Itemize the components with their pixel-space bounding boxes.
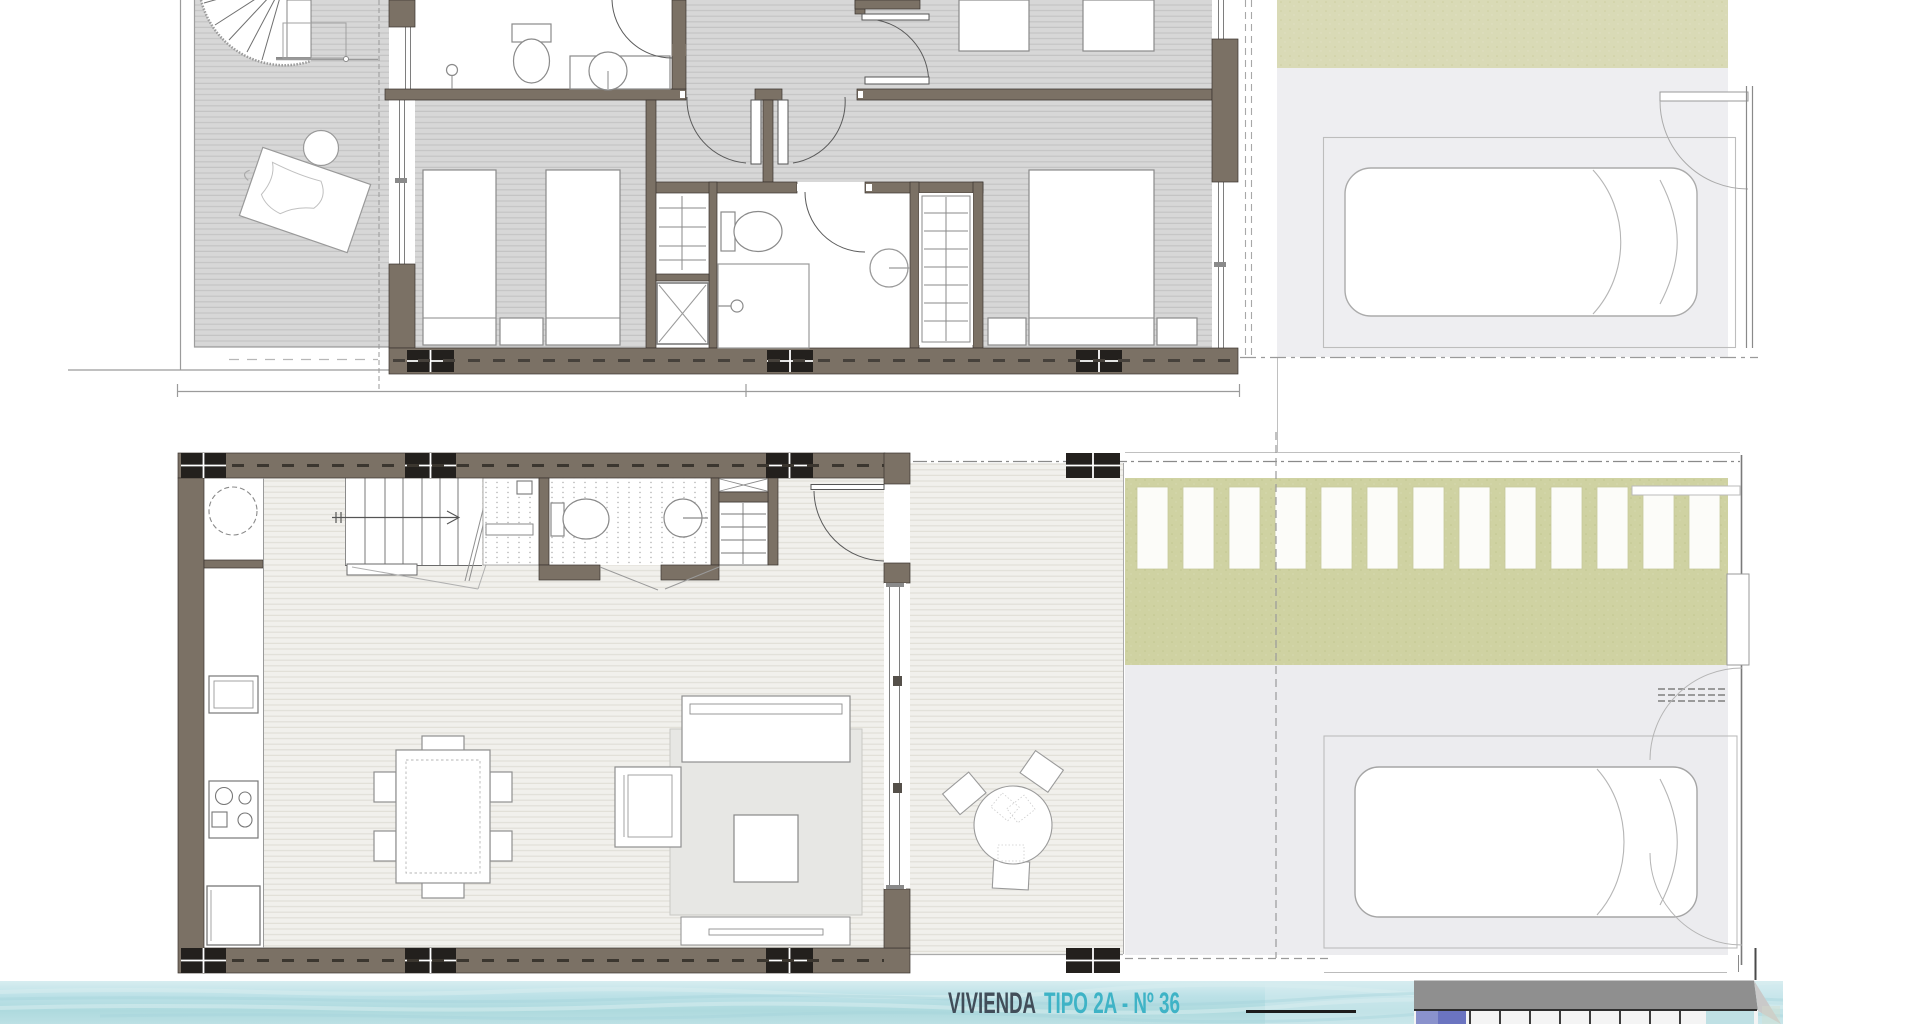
svg-text:TIPO 2A - Nº 36: TIPO 2A - Nº 36 [1044,987,1180,1020]
svg-text:VIVIENDA: VIVIENDA [948,987,1036,1020]
